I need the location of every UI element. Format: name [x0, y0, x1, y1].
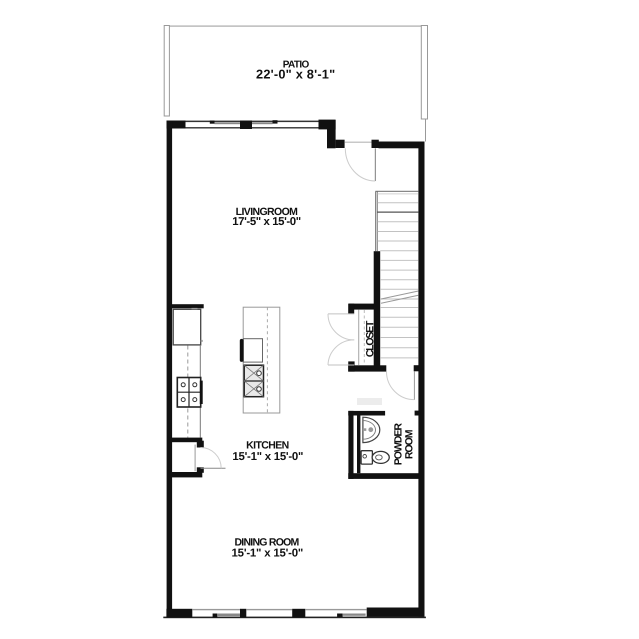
- svg-text:DINING ROOM: DINING ROOM: [234, 536, 299, 548]
- svg-text:KITCHEN: KITCHEN: [246, 439, 288, 451]
- svg-text:15'-1" x 15'-0": 15'-1" x 15'-0": [232, 548, 303, 560]
- svg-text:22'-0" x 8'-1": 22'-0" x 8'-1": [256, 66, 335, 81]
- svg-text:17'-5" x 15'-0": 17'-5" x 15'-0": [232, 216, 300, 228]
- svg-text:15'-1" x 15'-0": 15'-1" x 15'-0": [232, 451, 303, 463]
